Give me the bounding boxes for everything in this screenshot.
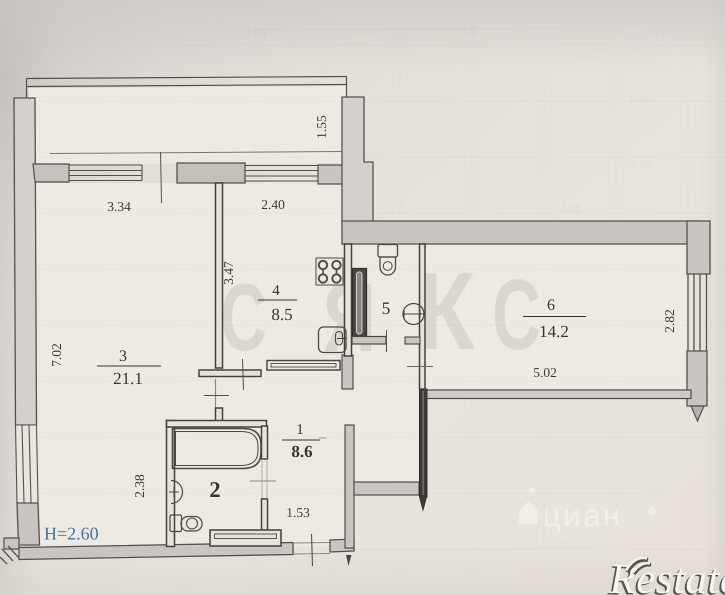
svg-text:5: 5	[382, 298, 391, 318]
svg-text:2.40: 2.40	[261, 197, 285, 212]
svg-text:2.93: 2.93	[245, 27, 266, 41]
svg-text:Restate: Restate	[609, 556, 725, 595]
svg-text:3: 3	[119, 348, 127, 365]
svg-text:1.55: 1.55	[314, 115, 329, 139]
svg-text:6: 6	[547, 297, 555, 314]
svg-text:21.1: 21.1	[113, 369, 143, 388]
svg-text:14.2: 14.2	[539, 322, 569, 341]
svg-text:2.05: 2.05	[630, 157, 651, 171]
svg-text:1.48: 1.48	[628, 92, 649, 106]
svg-text:2: 2	[209, 477, 220, 502]
svg-text:(о шкз): (о шкз)	[539, 528, 581, 543]
svg-text:7.02: 7.02	[49, 343, 64, 367]
svg-text:2.82: 2.82	[662, 309, 677, 333]
svg-text:3.34: 3.34	[107, 199, 131, 214]
svg-text:С: С	[492, 259, 541, 371]
svg-text:H=2.60: H=2.60	[44, 524, 99, 544]
svg-text:8.6: 8.6	[291, 442, 312, 461]
svg-text:5.02: 5.02	[533, 365, 557, 380]
svg-text:1.3: 1.3	[462, 25, 477, 39]
svg-text:4: 4	[272, 283, 280, 299]
svg-text:0.67: 0.67	[652, 27, 673, 41]
svg-text:1: 1	[296, 422, 304, 438]
svg-text:4.08: 4.08	[560, 201, 581, 215]
svg-text:2.38: 2.38	[132, 474, 147, 498]
svg-text:1.53: 1.53	[286, 505, 310, 520]
svg-text:3.47: 3.47	[221, 261, 236, 285]
svg-text:8.5: 8.5	[271, 305, 292, 324]
